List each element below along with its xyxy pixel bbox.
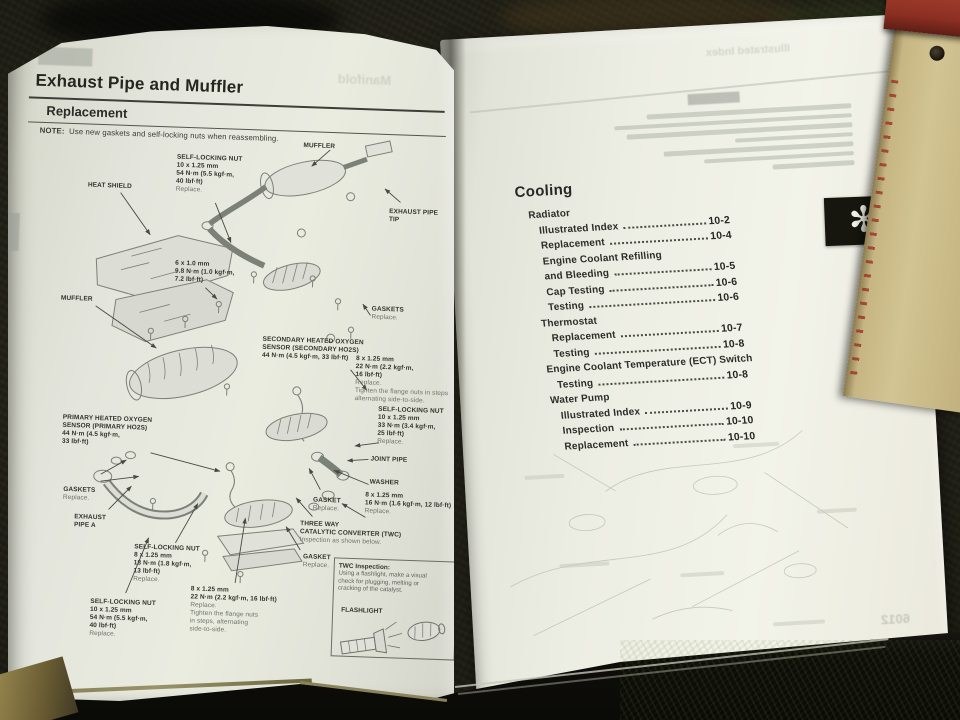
diagram-label: HEAT SHIELD (88, 182, 132, 191)
diagram-label: MUFFLER (61, 295, 93, 304)
diagram-label: THREE WAYCATALYTIC CONVERTER (TWC)Inspec… (299, 520, 401, 547)
diagram-label: 8 x 1.25 mm22 N·m (2.2 kgf·m,16 lbf·ft)R… (354, 355, 449, 406)
toc-page-number: 10-4 (709, 228, 732, 245)
toc-leader-dots (610, 237, 708, 244)
diagram-label: GASKETSReplace. (371, 305, 404, 322)
diagram-label-line: HEAT SHIELD (88, 182, 132, 191)
photo-open-service-manual: Illustrated Index Cooling RadiatorIllust… (0, 0, 960, 720)
toc-page-number: 10-8 (722, 336, 745, 353)
toc-page-number: 10-2 (708, 213, 731, 230)
diagram-label-line: PIPE A (74, 521, 106, 530)
binder-hole (929, 45, 946, 62)
twc-inspection-box: TWC Inspection: Using a flashlight, make… (331, 557, 458, 660)
diagram-label-line: Replace. (63, 494, 95, 503)
bleedthrough-text: Illustrated Index (680, 42, 790, 60)
diagram-label: GASKETReplace. (303, 553, 331, 570)
diagram-label: GASKETReplace. (313, 497, 341, 514)
diagram-label: MUFFLER (303, 142, 335, 151)
diagram-label: 8 x 1.25 mm16 N·m (1.6 kgf·m, 12 lbf·ft)… (365, 491, 452, 518)
diagram-label: SELF-LOCKING NUT10 x 1.25 mm54 N·m (5.5 … (176, 154, 243, 196)
section-heading: Cooling (514, 181, 573, 201)
toc-leader-dots (610, 284, 714, 292)
diagram-label: EXHAUSTPIPE A (74, 513, 106, 530)
diagram-label-line: WASHER (370, 479, 399, 488)
toc-page-number: 10-5 (713, 259, 736, 276)
toc-leader-dots (621, 330, 719, 337)
diagram-label-line: JOINT PIPE (370, 456, 407, 465)
toc-page-number: 10-6 (717, 290, 740, 307)
toc-page-number: 10-7 (720, 321, 743, 338)
diagram-label: GASKETSReplace. (63, 486, 96, 503)
flashlight-illustration (334, 612, 455, 660)
carpet-texture (620, 640, 960, 720)
diagram-label: SELF-LOCKING NUT10 x 1.25 mm54 N·m (5.5 … (89, 598, 156, 640)
diagram-label: SELF-LOCKING NUT10 x 1.25 mm33 N·m (3.4 … (377, 406, 444, 448)
diagram-label: SELF-LOCKING NUT8 x 1.25 mm18 N·m (1.8 k… (133, 543, 200, 585)
diagram-label: PRIMARY HEATED OXYGENSENSOR (PRIMARY HO2… (62, 414, 152, 449)
bleedthrough-badge (687, 91, 740, 105)
diagram-label: WASHER (370, 479, 399, 488)
toc-entry-label: Cap Testing (546, 282, 606, 301)
diagram-label-line: MUFFLER (303, 142, 335, 151)
diagram-label: 8 x 1.25 mm22 N·m (2.2 kgf·m, 16 lbf·ft)… (189, 585, 277, 635)
diagram-label: 6 x 1.0 mm9.8 N·m (1.0 kgf·m,7.2 lbf·ft) (175, 260, 235, 286)
diagram-label-line: Replace. (303, 561, 331, 570)
diagram-label: EXHAUST PIPETIP (389, 208, 438, 226)
bleedthrough-diagram (461, 394, 934, 669)
bleedthrough-number: 6012 (881, 611, 911, 628)
toc-leader-dots (614, 268, 711, 275)
toc-page-number: 10-8 (726, 367, 749, 384)
toc-leader-dots (623, 222, 705, 229)
diagram-label-line: Replace. (313, 504, 341, 513)
diagram-label-line: Replace. (371, 313, 403, 322)
diagram-label: SECONDARY HEATED OXYGENSENSOR (SECONDARY… (262, 336, 364, 363)
bleedthrough-paragraph (600, 103, 855, 183)
toc-page-number: 10-6 (715, 274, 738, 291)
left-page: Manifold Exhaust Pipe and Muffler Replac… (8, 26, 454, 708)
diagram-label: JOINT PIPE (370, 456, 407, 465)
diagram-label-line: MUFFLER (61, 295, 93, 304)
